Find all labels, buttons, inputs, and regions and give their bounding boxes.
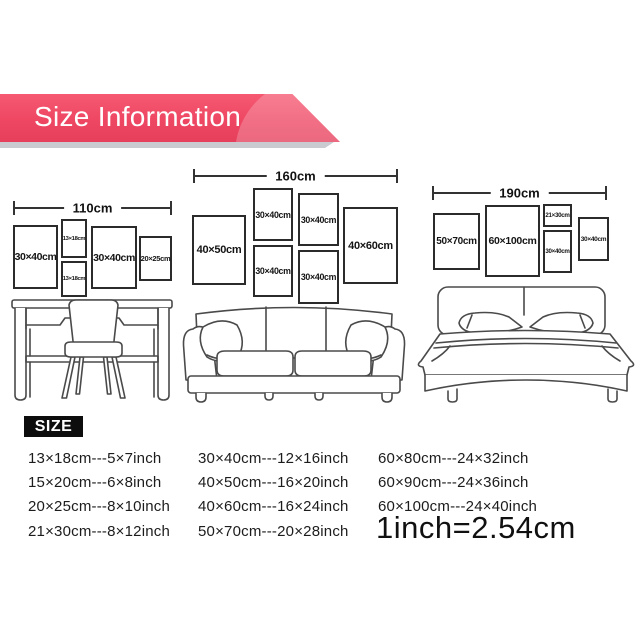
size-conversion-row: 15×20cm---6×8inch bbox=[28, 470, 170, 494]
frame-size-box: 30×40cm bbox=[578, 217, 609, 261]
inch-cm-conversion-note: 1inch=2.54cm bbox=[376, 510, 576, 546]
frame-size-box: 13×18cm bbox=[61, 219, 87, 258]
frame-size-box: 30×40cm bbox=[298, 193, 339, 246]
ribbon-shadow bbox=[0, 142, 334, 148]
size-conversion-row: 60×80cm---24×32inch bbox=[378, 446, 537, 470]
sofa-illustration bbox=[176, 296, 412, 410]
desk-and-chair-illustration bbox=[8, 296, 178, 408]
frame-size-box: 50×70cm bbox=[433, 213, 480, 270]
frame-size-box: 30×40cm bbox=[253, 188, 293, 241]
frame-size-box: 30×40cm bbox=[91, 226, 137, 289]
frame-size-box: 21×30cm bbox=[543, 204, 572, 227]
frame-size-box: 40×60cm bbox=[343, 207, 398, 284]
page-title: Size Information bbox=[34, 101, 241, 133]
size-conversion-row: 50×70cm---20×28inch bbox=[198, 519, 349, 543]
dimension-tick-right bbox=[605, 186, 607, 200]
dimension-label-sofa: 160cm bbox=[266, 169, 324, 184]
dimension-line-bed: 190cm bbox=[432, 186, 607, 200]
size-table-column-3: 60×80cm---24×32inch 60×90cm---24×36inch … bbox=[378, 446, 537, 519]
size-table-column-2: 30×40cm---12×16inch 40×50cm---16×20inch … bbox=[198, 446, 349, 544]
size-conversion-row: 40×50cm---16×20inch bbox=[198, 470, 349, 494]
dimension-line-sofa: 160cm bbox=[193, 169, 398, 183]
dimension-line-desk: 110cm bbox=[13, 201, 172, 215]
size-badge: SIZE bbox=[24, 416, 83, 437]
frame-size-box: 30×40cm bbox=[253, 245, 293, 297]
dimension-label-bed: 190cm bbox=[490, 186, 548, 201]
size-conversion-row: 60×90cm---24×36inch bbox=[378, 470, 537, 494]
dimension-label-desk: 110cm bbox=[64, 201, 122, 216]
frame-size-box: 30×40cm bbox=[13, 225, 58, 289]
dimension-tick-right bbox=[170, 201, 172, 215]
size-information-infographic: Size Information 110cm 30×40cm 13×18cm 1… bbox=[0, 0, 640, 640]
frame-size-box: 13×18cm bbox=[61, 261, 87, 297]
size-conversion-row: 13×18cm---5×7inch bbox=[28, 446, 170, 470]
dimension-tick-right bbox=[396, 169, 398, 183]
frame-size-box: 20×25cm bbox=[139, 236, 172, 281]
double-bed-illustration bbox=[412, 282, 640, 408]
size-conversion-row: 20×25cm---8×10inch bbox=[28, 495, 170, 519]
size-conversion-row: 21×30cm---8×12inch bbox=[28, 519, 170, 543]
frame-size-box: 60×100cm bbox=[485, 205, 540, 277]
size-conversion-row: 30×40cm---12×16inch bbox=[198, 446, 349, 470]
frame-size-box: 30×40cm bbox=[543, 230, 572, 273]
size-conversion-row: 40×60cm---16×24inch bbox=[198, 495, 349, 519]
frame-size-box: 40×50cm bbox=[192, 215, 246, 285]
size-table-column-1: 13×18cm---5×7inch 15×20cm---6×8inch 20×2… bbox=[28, 446, 170, 544]
banner-ribbon: Size Information bbox=[0, 94, 340, 142]
